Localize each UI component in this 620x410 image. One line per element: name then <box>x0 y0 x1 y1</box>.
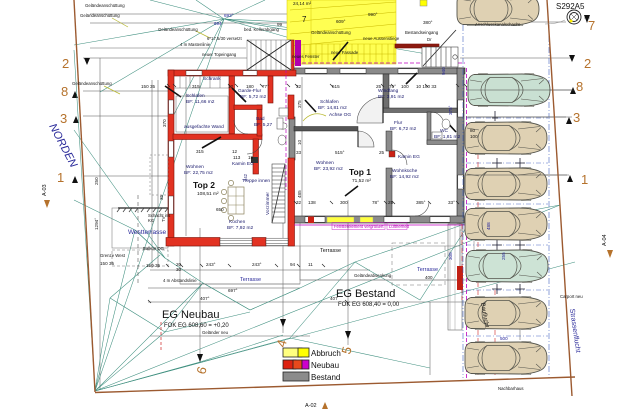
svg-text:2: 2 <box>62 56 69 71</box>
svg-text:407: 407 <box>330 296 338 301</box>
svg-text:1: 1 <box>581 172 588 187</box>
svg-text:150 35: 150 35 <box>146 263 160 268</box>
svg-text:S292A5: S292A5 <box>556 2 585 11</box>
svg-text:Carport neu: Carport neu <box>560 294 583 299</box>
svg-text:A-02: A-02 <box>305 403 317 409</box>
svg-text:650: 650 <box>216 207 224 212</box>
svg-text:Bestand: Bestand <box>311 373 340 382</box>
svg-text:10: 10 <box>297 139 302 145</box>
svg-text:94: 94 <box>290 262 296 267</box>
svg-text:342: 342 <box>243 173 248 181</box>
svg-text:Geländeanschüttung: Geländeanschüttung <box>158 27 198 32</box>
svg-text:10 180 33: 10 180 33 <box>416 84 437 89</box>
svg-text:8: 8 <box>61 84 68 99</box>
svg-text:Schrank: Schrank <box>203 76 221 82</box>
svg-text:Geländer neu: Geländer neu <box>202 330 229 335</box>
svg-text:BF: 1,81 m2: BF: 1,81 m2 <box>434 134 460 140</box>
svg-text:12: 12 <box>228 84 234 89</box>
svg-text:neues Fenster: neues Fenster <box>292 54 320 59</box>
svg-text:308: 308 <box>448 252 453 260</box>
svg-text:Anschlusskanalschacht: Anschlusskanalschacht <box>475 22 520 27</box>
svg-text:BF: 5,72 m2: BF: 5,72 m2 <box>240 94 266 100</box>
svg-text:99: 99 <box>277 22 283 27</box>
svg-text:485: 485 <box>297 190 302 198</box>
svg-text:400: 400 <box>425 275 433 280</box>
svg-text:693°: 693° <box>224 13 234 18</box>
svg-text:250: 250 <box>94 177 99 185</box>
svg-text:694: 694 <box>214 21 222 26</box>
svg-text:150 35: 150 35 <box>100 261 114 266</box>
svg-text:30: 30 <box>176 267 182 272</box>
svg-text:35: 35 <box>159 194 164 200</box>
svg-text:Bestandseingang: Bestandseingang <box>405 30 439 35</box>
svg-text:BF: 6,72 m2: BF: 6,72 m2 <box>390 126 416 132</box>
svg-text:100: 100 <box>470 134 478 139</box>
svg-text:25: 25 <box>388 200 394 205</box>
svg-text:33°: 33° <box>448 200 455 205</box>
svg-text:Vorzimmer: Vorzimmer <box>265 192 271 215</box>
svg-text:75°: 75° <box>389 84 396 89</box>
svg-text:BF: 22,75 m2: BF: 22,75 m2 <box>184 170 213 176</box>
svg-text:BF: 11,66 m2: BF: 11,66 m2 <box>186 99 215 105</box>
svg-text:FOK EG 608,60 = +0,20: FOK EG 608,60 = +0,20 <box>164 323 229 329</box>
svg-text:8: 8 <box>576 79 583 94</box>
svg-text:488: 488 <box>486 222 491 230</box>
svg-text:BF: 14,92 m2: BF: 14,92 m2 <box>390 174 419 180</box>
svg-text:78°: 78° <box>372 200 379 205</box>
svg-text:Top 2: Top 2 <box>193 180 215 190</box>
svg-text:375°: 375° <box>448 105 453 115</box>
svg-text:1294°: 1294° <box>94 218 99 230</box>
svg-text:80: 80 <box>470 128 476 133</box>
svg-text:108,51 m²: 108,51 m² <box>197 191 219 197</box>
svg-text:380°: 380° <box>423 20 433 25</box>
svg-text:100: 100 <box>401 84 409 89</box>
svg-text:Terrasse: Terrasse <box>320 248 341 254</box>
svg-text:Balkon OG: Balkon OG <box>143 246 165 251</box>
svg-text:515°: 515° <box>335 150 345 155</box>
svg-text:500: 500 <box>500 336 508 341</box>
svg-text:BF: 5,27: BF: 5,27 <box>254 122 272 128</box>
svg-text:WC: WC <box>440 128 449 134</box>
svg-text:697°: 697° <box>228 288 238 293</box>
svg-text:Neubau: Neubau <box>311 361 339 370</box>
svg-text:Geländeanschüttung: Geländeanschüttung <box>72 81 112 86</box>
svg-text:A-04: A-04 <box>602 234 608 246</box>
svg-text:Geländeabsenkung: Geländeabsenkung <box>354 273 392 278</box>
svg-text:940: 940 <box>441 67 446 75</box>
svg-text:Kochen: Kochen <box>229 219 246 225</box>
svg-text:Fensterelement vergrößert: Fensterelement vergrößert <box>334 224 384 229</box>
svg-text:Schlafen: Schlafen <box>320 99 339 105</box>
svg-text:180: 180 <box>246 84 254 89</box>
svg-text:19: 19 <box>248 155 254 160</box>
svg-text:33: 33 <box>296 150 302 155</box>
svg-text:Achse OG: Achse OG <box>329 112 351 118</box>
svg-text:243°: 243° <box>206 262 216 267</box>
svg-text:Schlafen: Schlafen <box>186 93 205 99</box>
svg-text:12: 12 <box>232 149 238 154</box>
svg-text:4 m Abstandslinie: 4 m Abstandslinie <box>163 278 197 283</box>
svg-text:25: 25 <box>379 150 385 155</box>
svg-text:4 m Mastenlinie: 4 m Mastenlinie <box>180 42 211 47</box>
svg-text:FOK EG 608,40 = 0,00: FOK EG 608,40 = 0,00 <box>338 302 400 308</box>
svg-text:315: 315 <box>196 149 204 154</box>
svg-text:Terrasse: Terrasse <box>417 267 438 273</box>
svg-text:315: 315 <box>192 84 200 89</box>
svg-text:243°: 243° <box>252 262 262 267</box>
svg-text:515: 515 <box>332 84 340 89</box>
svg-text:bed. Kellerabgang: bed. Kellerabgang <box>244 27 279 32</box>
svg-text:Geländeanschüttung: Geländeanschüttung <box>80 13 120 18</box>
svg-text:KG: KG <box>148 218 155 223</box>
svg-text:Wohnen: Wohnen <box>316 160 334 166</box>
svg-text:7: 7 <box>588 18 595 33</box>
svg-text:Flur: Flur <box>394 120 403 126</box>
svg-text:Geländeanschüttung: Geländeanschüttung <box>311 30 351 35</box>
svg-text:neuer Topeingang: neuer Topeingang <box>202 52 237 57</box>
svg-text:neue Aussenstiege: neue Aussenstiege <box>363 36 400 41</box>
svg-text:370: 370 <box>162 119 167 127</box>
svg-text:150 35: 150 35 <box>141 84 155 89</box>
svg-text:11: 11 <box>308 262 313 267</box>
svg-text:2: 2 <box>584 56 591 71</box>
svg-text:BF: 14,81 m2: BF: 14,81 m2 <box>318 105 347 111</box>
svg-text:BF: 23,92 m2: BF: 23,92 m2 <box>314 166 343 172</box>
svg-text:77°: 77° <box>262 84 269 89</box>
svg-text:Grenze West: Grenze West <box>100 253 126 258</box>
svg-text:Terrasse: Terrasse <box>240 277 261 283</box>
svg-text:Wohnküche: Wohnküche <box>392 168 418 174</box>
svg-text:Wohnen: Wohnen <box>186 164 204 170</box>
svg-text:EG Neubau: EG Neubau <box>162 309 219 321</box>
svg-text:BF: 3,91 m2: BF: 3,91 m2 <box>378 94 404 100</box>
svg-text:1: 1 <box>57 170 64 185</box>
svg-text:Abbruch: Abbruch <box>311 349 341 358</box>
svg-text:385°: 385° <box>416 200 426 205</box>
svg-text:24,14 m²: 24,14 m² <box>293 1 312 6</box>
svg-text:609°: 609° <box>336 19 346 24</box>
svg-text:Westterrasse: Westterrasse <box>128 229 167 236</box>
svg-text:407°: 407° <box>200 296 210 301</box>
svg-text:Geländeanschüttung: Geländeanschüttung <box>85 3 125 8</box>
svg-text:32: 32 <box>296 84 302 89</box>
svg-text:255: 255 <box>501 252 506 260</box>
svg-text:Kamin EG: Kamin EG <box>398 154 420 160</box>
svg-text:71,52 m²: 71,52 m² <box>352 178 371 184</box>
svg-text:25: 25 <box>376 84 382 89</box>
svg-text:Lüftherhett: Lüftherhett <box>389 224 410 229</box>
svg-text:375: 375 <box>297 100 302 108</box>
svg-text:A-03: A-03 <box>42 184 48 196</box>
svg-text:Top 1: Top 1 <box>349 167 371 177</box>
svg-text:Dr: Dr <box>427 37 432 42</box>
svg-text:neue Fassade: neue Fassade <box>331 50 359 55</box>
svg-text:BF: 7,92 m2: BF: 7,92 m2 <box>227 225 253 231</box>
svg-text:TV: TV <box>161 216 166 222</box>
svg-text:Kamin EG: Kamin EG <box>232 161 254 167</box>
svg-text:3: 3 <box>573 110 580 125</box>
svg-text:EG Bestand: EG Bestand <box>336 288 395 300</box>
svg-text:Bad: Bad <box>256 116 265 122</box>
svg-text:113: 113 <box>233 155 241 160</box>
svg-text:990°: 990° <box>368 12 378 17</box>
svg-text:138: 138 <box>308 200 316 205</box>
svg-text:300: 300 <box>340 200 348 205</box>
svg-text:7: 7 <box>302 15 307 24</box>
svg-text:ausgefachte Wand: ausgefachte Wand <box>184 124 224 130</box>
svg-text:3: 3 <box>60 111 67 126</box>
svg-text:32: 32 <box>296 200 302 205</box>
svg-text:Nachbarhaus: Nachbarhaus <box>498 386 524 391</box>
svg-text:6*17,5/30 versetzt: 6*17,5/30 versetzt <box>207 36 242 41</box>
